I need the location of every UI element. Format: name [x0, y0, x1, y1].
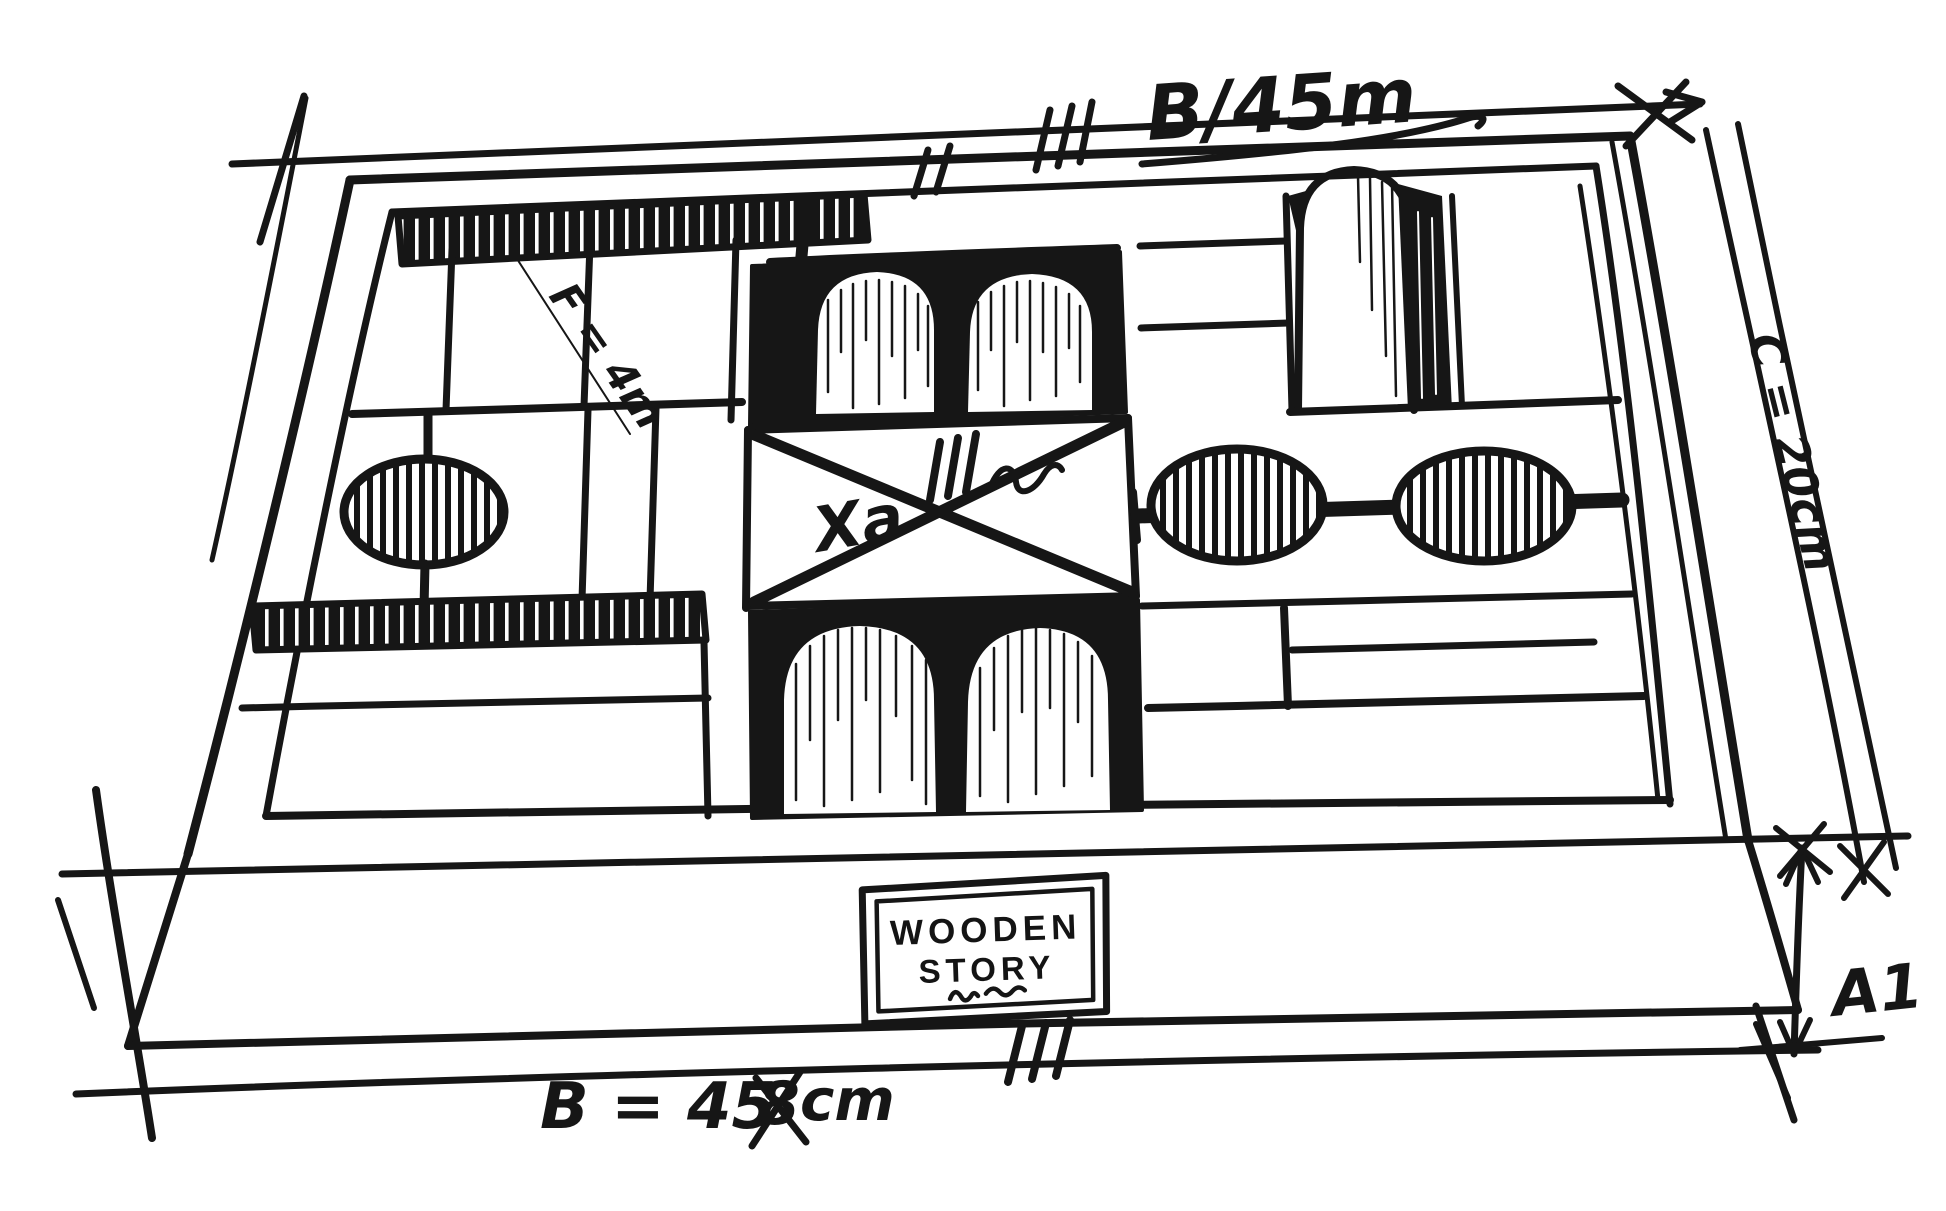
x-block-left-edge — [746, 430, 748, 608]
front-tally-marks — [1008, 1020, 1070, 1082]
left-extension-line — [212, 98, 306, 560]
dumbbell-bar-cap — [1133, 492, 1137, 540]
plank-column-line-2 — [1141, 323, 1288, 328]
left-grid-row1-bottom — [352, 402, 742, 414]
plank-column-line-1 — [1140, 241, 1286, 246]
front-face-left-edge — [128, 854, 188, 1046]
top-width-label: B/45m — [1143, 50, 1419, 158]
hatched-bead-right-1 — [1151, 449, 1323, 561]
left-grid-divider-3 — [731, 240, 736, 420]
front-plank-divider — [1284, 608, 1288, 706]
right-bottom-cross — [1840, 842, 1888, 898]
arch-window-front-2 — [966, 628, 1110, 812]
bottom-width-label-suffix: cm — [800, 1066, 895, 1134]
center-blocks-region — [746, 204, 1142, 818]
scanned-sketch-page: B/45m C = 20cm B = 45 8 cm A1 F = 4m Xa … — [0, 0, 1946, 1211]
dome-drip-hatching — [1358, 176, 1396, 396]
top-right-end-cross — [1618, 82, 1702, 146]
tall-rect-left-edge — [1452, 196, 1462, 406]
rim-outer-right-edge-2 — [1612, 142, 1726, 840]
front-left-plank-divider — [704, 642, 708, 816]
middle-row-bottom — [1142, 594, 1632, 606]
height-dimension-line — [1794, 848, 1802, 1054]
blocks-box-sketch: B/45m C = 20cm B = 45 8 cm A1 F = 4m Xa … — [0, 0, 1946, 1211]
right-blocks-region — [1133, 170, 1644, 708]
front-left-plank-line — [242, 698, 708, 708]
hatched-bead-right-2 — [1396, 451, 1572, 561]
back-plank-left-edge — [801, 204, 806, 262]
front-plank-line-a — [1292, 642, 1594, 650]
right-depth-label: C = 20cm — [1737, 328, 1848, 577]
dimension-line-bottom — [76, 1050, 1818, 1094]
left-grid-divider-1 — [446, 250, 452, 410]
brand-line-2: STORY — [918, 948, 1056, 990]
center-tally-marks — [930, 434, 976, 500]
block-diagonal-label: F = 4m — [540, 274, 675, 438]
brand-label-plate: WOODEN STORY — [860, 875, 1111, 1024]
comb-strip-front — [252, 594, 706, 650]
bottom-width-label-struck: 8 — [758, 1069, 800, 1139]
right-row-bottom — [1290, 400, 1618, 412]
hatched-bead-left — [344, 459, 504, 565]
center-block-label: Xa — [804, 479, 909, 567]
bottom-right-diagonal — [1756, 1006, 1794, 1120]
bottom-width-label-prefix: B = 45 — [540, 1070, 776, 1144]
narrow-divider-2 — [650, 408, 656, 600]
front-plank-line-b — [1148, 696, 1644, 708]
bottom-left-tick — [58, 900, 94, 1008]
brand-line-1: WOODEN — [889, 907, 1082, 953]
arch-window-back-1 — [816, 272, 934, 414]
plank-column-right-edge — [1286, 196, 1292, 410]
dome-shade-band — [1398, 184, 1452, 410]
front-height-label: A1 — [1823, 949, 1926, 1032]
front-face-top-edge — [62, 836, 1908, 874]
bottom-left-diagonal — [96, 790, 152, 1138]
narrow-divider-1 — [582, 410, 588, 600]
